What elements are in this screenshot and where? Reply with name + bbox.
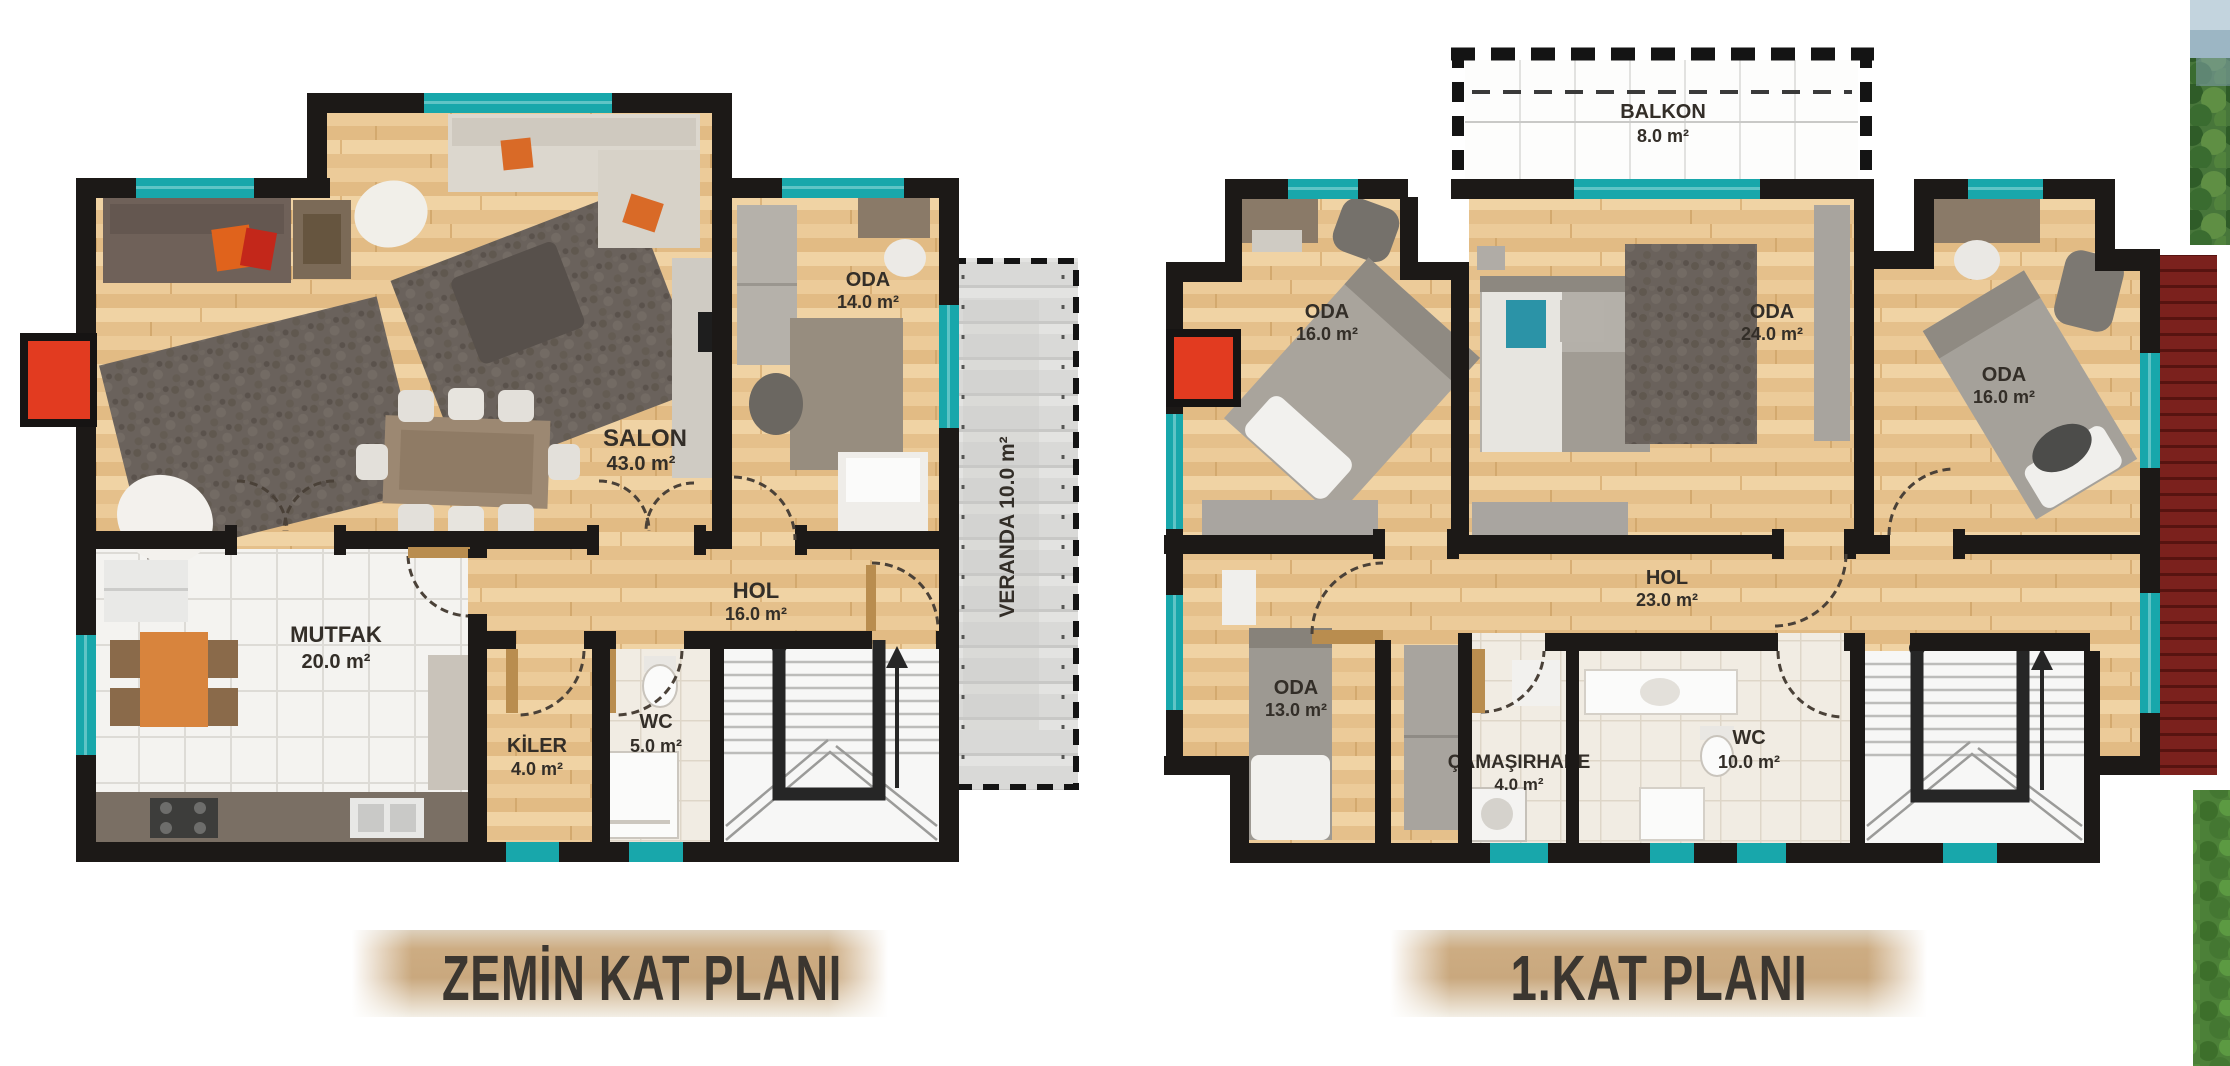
svg-text:16.0 m²: 16.0 m² xyxy=(725,604,787,624)
svg-text:ZEMİN KAT PLANI: ZEMİN KAT PLANI xyxy=(442,942,842,1014)
svg-text:1.KAT PLANI: 1.KAT PLANI xyxy=(1511,942,1808,1014)
svg-text:KİLER: KİLER xyxy=(507,734,568,757)
svg-text:HOL: HOL xyxy=(1646,567,1688,589)
svg-text:HOL: HOL xyxy=(733,578,779,603)
svg-text:4.0 m²: 4.0 m² xyxy=(1494,775,1543,794)
svg-text:23.0 m²: 23.0 m² xyxy=(1636,590,1698,610)
svg-text:WC: WC xyxy=(1732,727,1765,749)
svg-text:10.0 m²: 10.0 m² xyxy=(1718,752,1780,772)
svg-text:8.0 m²: 8.0 m² xyxy=(1637,126,1689,146)
svg-text:13.0 m²: 13.0 m² xyxy=(1265,700,1327,720)
svg-text:24.0 m²: 24.0 m² xyxy=(1741,324,1803,344)
svg-text:ODA: ODA xyxy=(846,269,890,291)
svg-text:SALON: SALON xyxy=(603,425,687,452)
svg-text:MUTFAK: MUTFAK xyxy=(290,622,382,647)
svg-text:14.0 m²: 14.0 m² xyxy=(837,292,899,312)
svg-text:BALKON: BALKON xyxy=(1620,101,1706,123)
svg-text:ODA: ODA xyxy=(1982,364,2026,386)
svg-text:ODA: ODA xyxy=(1750,301,1794,323)
svg-text:4.0 m²: 4.0 m² xyxy=(511,759,563,779)
svg-text:ODA: ODA xyxy=(1274,677,1318,699)
svg-text:43.0 m²: 43.0 m² xyxy=(607,453,676,475)
svg-text:5.0 m²: 5.0 m² xyxy=(630,736,682,756)
svg-text:16.0 m²: 16.0 m² xyxy=(1973,387,2035,407)
svg-text:VERANDA 10.0 m²: VERANDA 10.0 m² xyxy=(996,436,1019,617)
svg-text:20.0 m²: 20.0 m² xyxy=(302,651,371,673)
svg-text:16.0 m²: 16.0 m² xyxy=(1296,324,1358,344)
svg-text:WC: WC xyxy=(639,711,672,733)
svg-text:ODA: ODA xyxy=(1305,301,1349,323)
